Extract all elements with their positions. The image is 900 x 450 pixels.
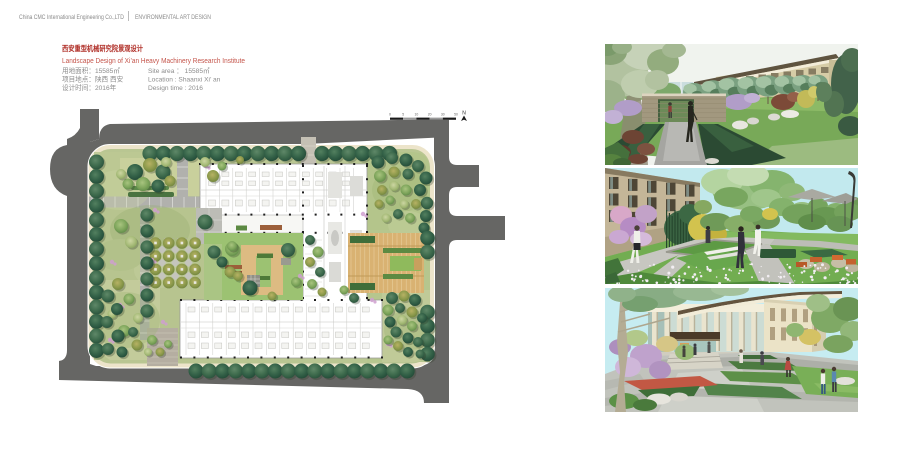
svg-text:20: 20 <box>428 113 432 117</box>
svg-text:N: N <box>462 111 466 117</box>
svg-text:设计时间：2016年: 设计时间：2016年 <box>62 83 117 92</box>
svg-text:China CMC International Engine: China CMC International Engineering Co.,… <box>19 14 124 21</box>
svg-text:Site area ： 15585㎡: Site area ： 15585㎡ <box>148 66 210 75</box>
svg-text:项目地点：陕西 西安: 项目地点：陕西 西安 <box>62 75 124 84</box>
svg-text:西安重型机械研究院景观设计: 西安重型机械研究院景观设计 <box>62 43 143 53</box>
svg-text:10: 10 <box>415 113 419 117</box>
svg-text:Location : Shaanxi Xi’ an: Location : Shaanxi Xi’ an <box>148 77 221 84</box>
svg-text:Landscape Design of Xi’an Heav: Landscape Design of Xi’an Heavy Machiner… <box>62 58 245 65</box>
svg-text:30: 30 <box>441 113 445 117</box>
svg-text:ENVIRONMENTAL ART DESIGN: ENVIRONMENTAL ART DESIGN <box>135 14 211 21</box>
svg-text:5: 5 <box>402 113 404 117</box>
svg-text:Design time : 2016: Design time : 2016 <box>148 85 203 92</box>
svg-text:0: 0 <box>389 113 391 117</box>
svg-text:用地面积：15585㎡: 用地面积：15585㎡ <box>62 66 120 75</box>
svg-text:50: 50 <box>454 113 458 117</box>
